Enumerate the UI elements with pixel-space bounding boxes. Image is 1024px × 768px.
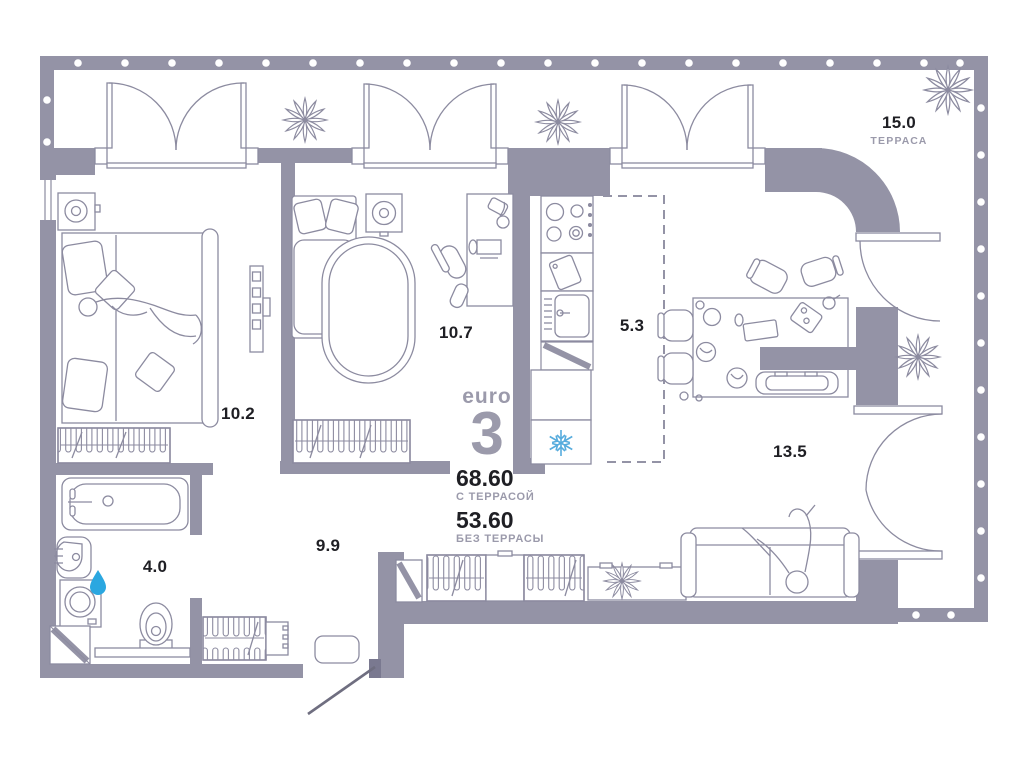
cabinet: [486, 551, 524, 601]
living-room-area-label: 13.5: [773, 442, 807, 462]
shaft: [396, 560, 422, 602]
toilet: [140, 603, 172, 652]
total-with-terrace-value: 68.60: [456, 466, 544, 490]
doormat: [315, 636, 359, 663]
wardrobe: [58, 428, 170, 463]
wardrobe: [293, 420, 410, 463]
shaft: [50, 626, 90, 664]
plan-brand-number: 3: [470, 404, 503, 464]
nightstand-lamp: [58, 193, 100, 230]
stove: [541, 196, 593, 253]
hall-closet: [203, 617, 266, 660]
window-left: [40, 180, 56, 220]
water-drop-icon: [90, 570, 106, 595]
dining-table: [680, 295, 856, 401]
floor-plan: 15.0 ТЕРРАСА 10.2 10.7 5.3 13.5 4.0 9.9 …: [0, 0, 1024, 768]
total-without-terrace-label: БЕЗ ТЕРРАСЫ: [456, 533, 544, 545]
bathroom-sink: [54, 537, 91, 578]
cutting-board: [541, 253, 593, 291]
tv-cabinet: [250, 266, 270, 352]
total-with-terrace-label: С ТЕРРАСОЙ: [456, 491, 544, 503]
kitchen-area-label: 5.3: [620, 316, 644, 336]
rug: [322, 237, 415, 383]
sofa: [681, 505, 859, 597]
total-without-terrace-value: 53.60: [456, 508, 544, 532]
terrace-area-label: 15.0: [882, 113, 916, 133]
floor-plan-drawing: [0, 0, 1024, 768]
entrance-door: [308, 667, 375, 714]
shaft: [541, 342, 593, 370]
bedroom-1-area-label: 10.2: [221, 404, 255, 424]
counter: [95, 648, 190, 657]
hallway-area-label: 9.9: [316, 536, 340, 556]
bedroom-2-area-label: 10.7: [439, 323, 473, 343]
desk-chair: [430, 243, 470, 310]
wardrobe: [524, 555, 584, 601]
bathroom-area-label: 4.0: [143, 557, 167, 577]
bathtub: [62, 478, 188, 530]
wardrobe: [427, 555, 486, 601]
shoe-cabinet: [266, 622, 288, 655]
terrace-name-label: ТЕРРАСА: [870, 135, 927, 147]
platter: [756, 372, 838, 394]
fridge: [531, 370, 591, 464]
hallway: [50, 560, 422, 714]
terrace-doors-top: [95, 83, 765, 168]
double-bed: [61, 229, 218, 427]
desk: [467, 194, 513, 306]
totals-block: 68.60 С ТЕРРАСОЙ 53.60 БЕЗ ТЕРРАСЫ: [456, 466, 544, 550]
nightstand-lamp: [366, 194, 402, 236]
kitchen-sink: [541, 291, 593, 341]
